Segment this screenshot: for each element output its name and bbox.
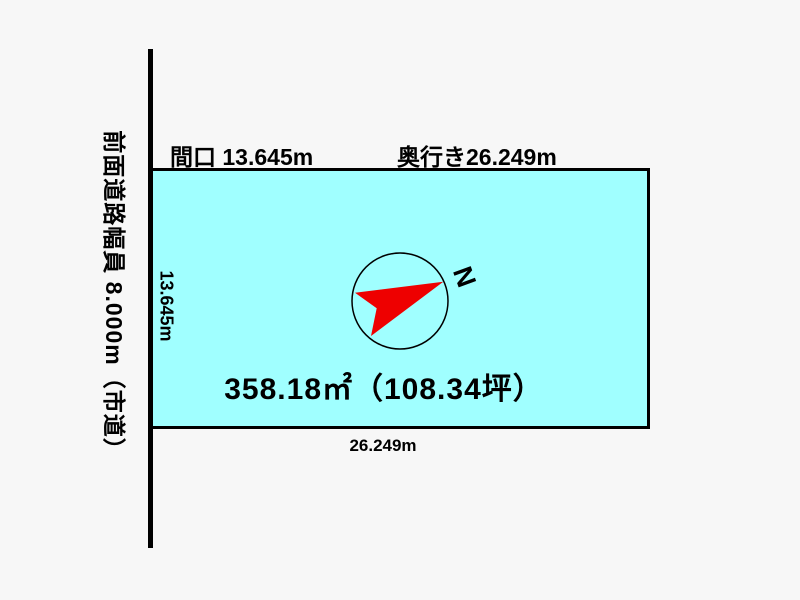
depth-bottom-label: 26.249m	[349, 436, 416, 456]
area-label: 358.18㎡（108.34坪）	[224, 364, 544, 408]
frontage-side-label: 13.645m	[156, 270, 177, 341]
land-plot-diagram: 前面道路幅員 8.000m（市道） 間口 13.645m 奥行き26.249m …	[0, 0, 800, 600]
road-width-label: 前面道路幅員 8.000m（市道）	[99, 130, 133, 461]
compass	[330, 240, 490, 360]
north-arrow-icon	[355, 282, 443, 336]
frontage-dimension-label: 間口 13.645m	[170, 138, 313, 164]
depth-dimension-label: 奥行き26.249m	[397, 138, 557, 164]
